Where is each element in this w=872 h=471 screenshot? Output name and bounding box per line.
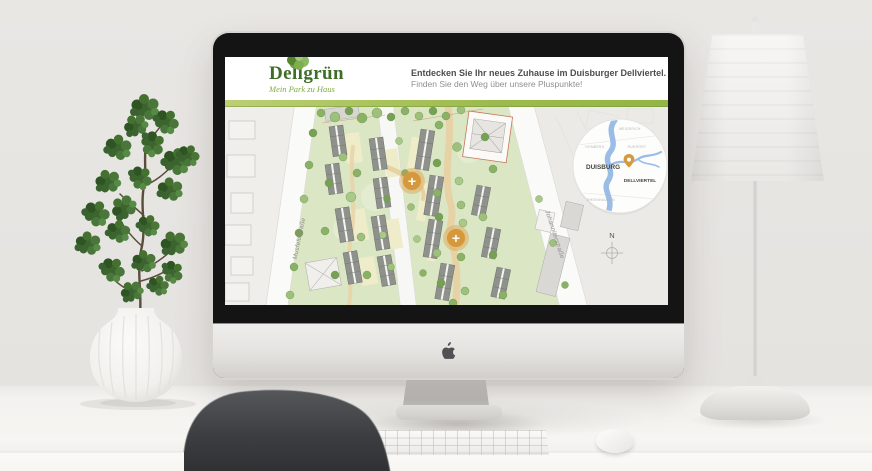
imac-monitor: De llgrün Mein Park zu Haus Entdecken Si… (213, 33, 684, 433)
lamp-shade (691, 34, 824, 181)
minimap-city-label: DUISBURG (586, 164, 620, 171)
plus-point-button[interactable]: + (447, 229, 465, 247)
imac-chin (213, 323, 684, 378)
scene: De llgrün Mein Park zu Haus Entdecken Si… (0, 0, 872, 471)
minimap-district-label: DELLVIERTEL (624, 178, 656, 184)
subheadline: Finden Sie den Weg über unsere Pluspunkt… (411, 79, 666, 90)
minimap-area-label: RUHRORT (628, 145, 647, 149)
plus-icon: + (408, 174, 416, 188)
plus-icon: + (452, 231, 460, 245)
lamp-base (700, 386, 810, 420)
brand-logo[interactable]: De llgrün Mein Park zu Haus (269, 64, 387, 94)
plus-point-button[interactable]: + (403, 172, 421, 190)
imac-stand-foot (396, 405, 502, 420)
headline: Entdecken Sie Ihr neues Zuhause im Duisb… (411, 67, 666, 79)
brand-tagline: Mein Park zu Haus (269, 84, 387, 94)
header-text: Entdecken Sie Ihr neues Zuhause im Duisb… (411, 67, 666, 91)
website-header: De llgrün Mein Park zu Haus Entdecken Si… (225, 57, 668, 100)
minimap-area-label: MEIDERICH (619, 127, 641, 131)
minimap-area-label: RHEINHAUSEN (587, 198, 615, 202)
compass-label: N (609, 231, 614, 240)
office-chair (178, 384, 396, 471)
mouse (596, 429, 634, 453)
minimap-area-label: HOMBERG (585, 145, 604, 149)
site-plan-map: Musfeldstraße Johanniterstraße N (225, 107, 668, 305)
tree-icon (287, 57, 311, 70)
lamp-stem (752, 181, 758, 383)
accent-stripe (225, 100, 668, 107)
apple-logo-icon (442, 342, 456, 359)
desk-lamp (680, 14, 860, 434)
imac-screen: De llgrün Mein Park zu Haus Entdecken Si… (225, 57, 668, 305)
imac-body: De llgrün Mein Park zu Haus Entdecken Si… (213, 33, 684, 378)
minimap: MEIDERICH RUHRORT HOMBERG RHEINHAUSEN DU… (573, 119, 667, 215)
